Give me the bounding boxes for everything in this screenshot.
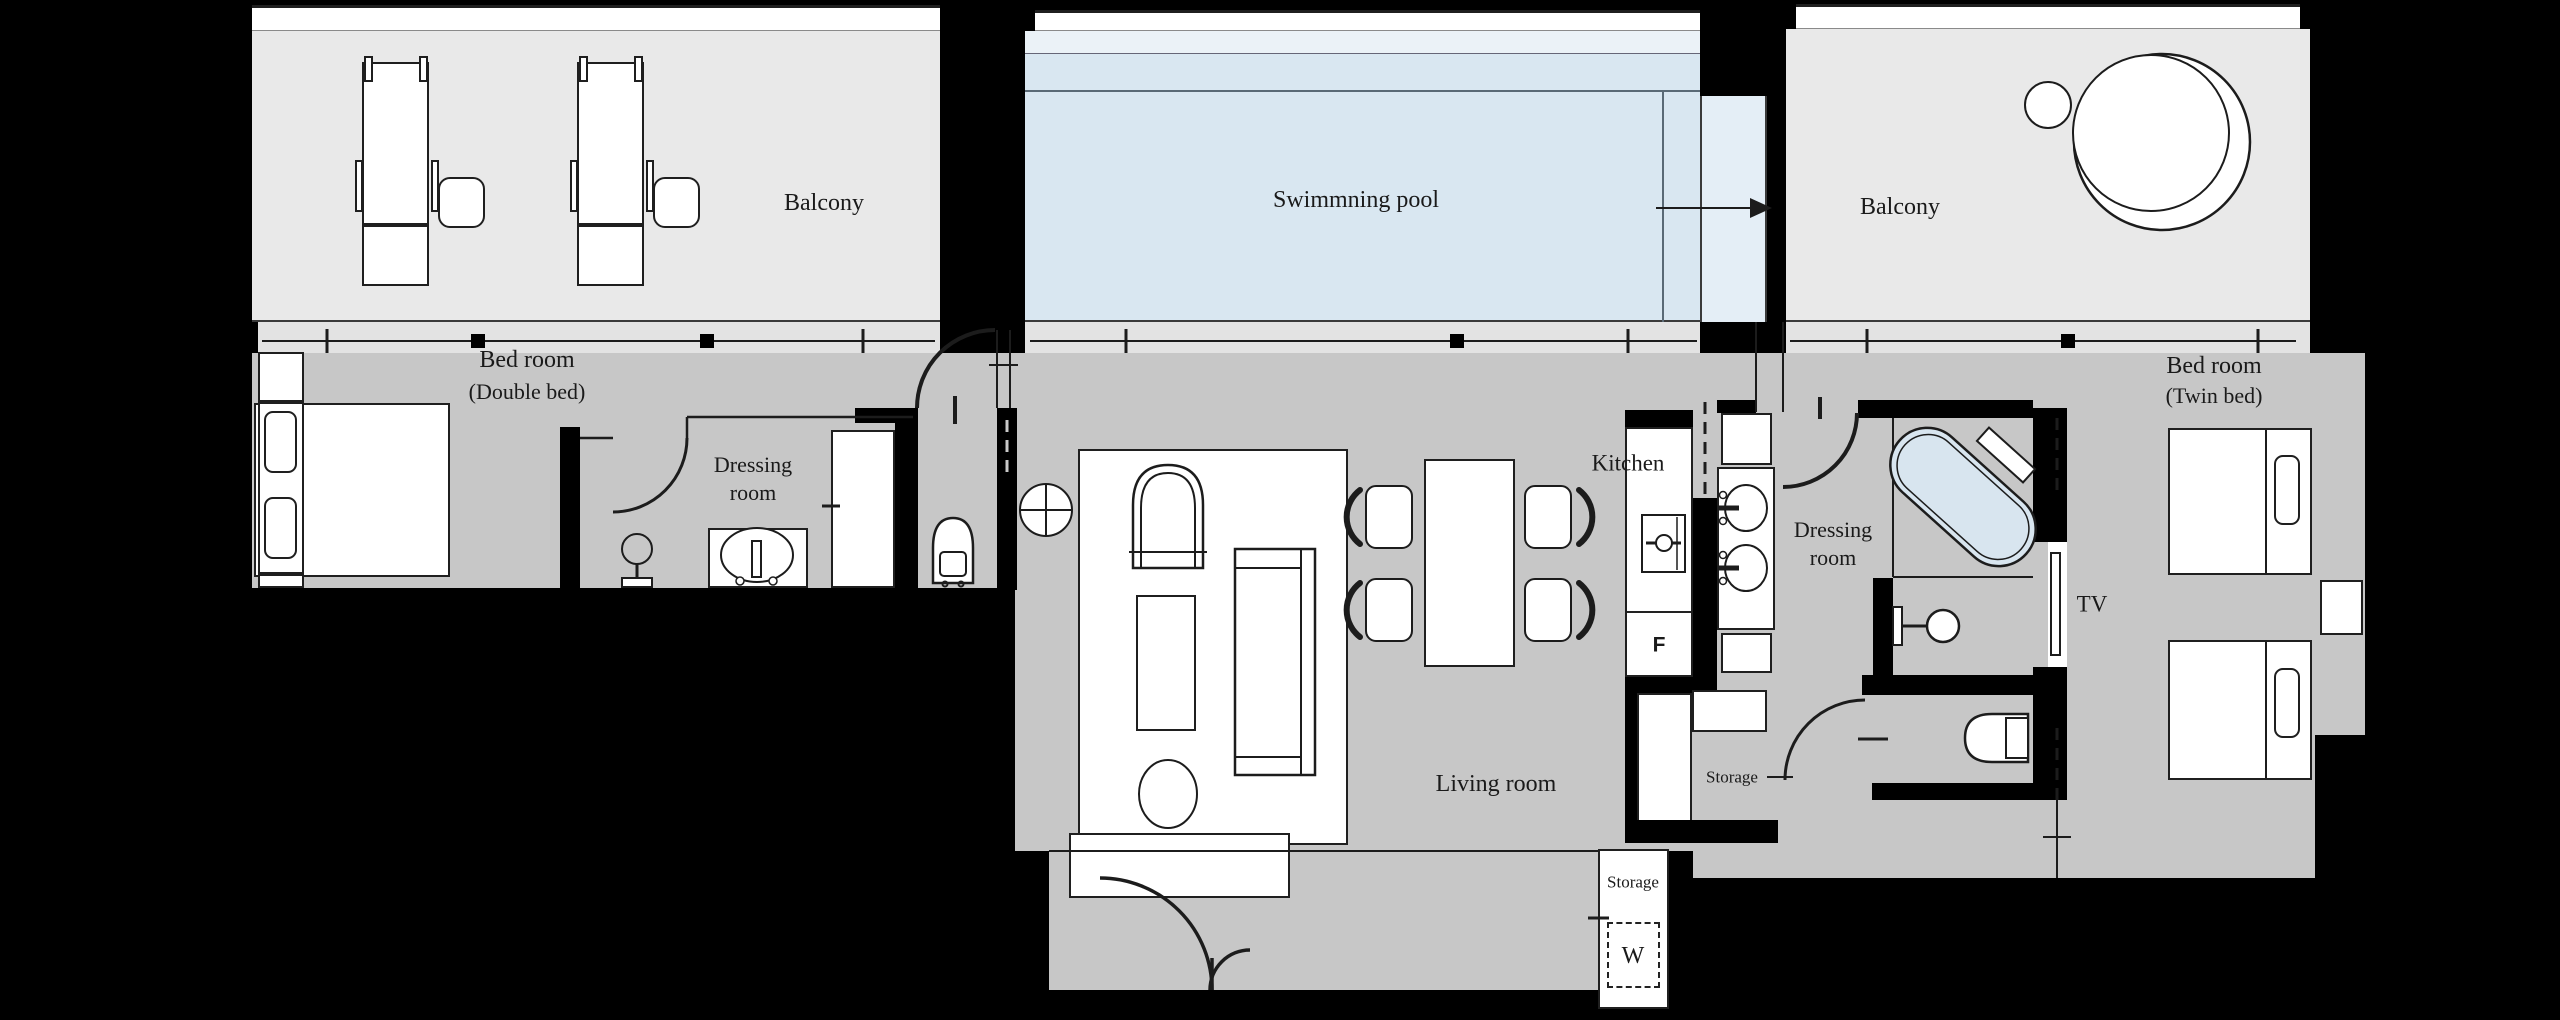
balcony-left-label: Balcony bbox=[784, 191, 864, 215]
lounger-tab bbox=[570, 160, 578, 212]
railing-band-right bbox=[1796, 4, 2300, 29]
dressing-right-label-1: Dressing bbox=[1794, 519, 1872, 541]
tv-console bbox=[1069, 833, 1290, 898]
floor-plan: Balcony Swimmning pool Balcony Bed room … bbox=[0, 0, 2560, 1020]
balcony-right-floor bbox=[1786, 29, 2310, 322]
bedroom-left-sublabel: (Double bed) bbox=[469, 381, 586, 403]
window-band-left bbox=[252, 322, 940, 353]
living-room-label: Living room bbox=[1436, 772, 1557, 796]
swimming-pool-label: Swimmning pool bbox=[1273, 188, 1439, 212]
wall-toilet2-bottom bbox=[1872, 783, 2057, 800]
lounger-tab bbox=[579, 56, 588, 82]
pillow bbox=[2274, 455, 2300, 525]
window-band-right bbox=[1786, 322, 2310, 353]
bedroom-left-label: Bed room bbox=[479, 348, 574, 372]
pier-top-left bbox=[940, 0, 1025, 98]
storage-center-label: Storage bbox=[1706, 769, 1758, 786]
closet-corridor bbox=[831, 430, 895, 588]
tv-niche bbox=[2048, 542, 2067, 667]
nightstand-bottom bbox=[258, 574, 304, 588]
pier-bottom-right-b bbox=[1781, 322, 1786, 353]
sun-lounger-body bbox=[577, 62, 644, 225]
bedroom-right-label: Bed room bbox=[2166, 354, 2261, 378]
wall-bath-top bbox=[1858, 400, 2033, 418]
dining-table bbox=[1424, 459, 1515, 667]
pool-edge-line bbox=[1025, 90, 1700, 92]
tv-wall-lower bbox=[2033, 667, 2067, 800]
wall-bedl-divider bbox=[560, 427, 580, 590]
bedroom-right-notch bbox=[2315, 735, 2378, 878]
left-block-bottom-wall bbox=[250, 588, 1015, 620]
lounger-tab bbox=[419, 56, 428, 82]
kitchen-label: Kitchen bbox=[1592, 452, 1665, 475]
side-table bbox=[438, 177, 485, 228]
storage-bottom-label: Storage bbox=[1607, 874, 1659, 891]
pillow bbox=[2274, 668, 2300, 738]
bottom-wall-right bbox=[1778, 878, 2378, 902]
wash-counter-top-box bbox=[1721, 413, 1772, 465]
wash-counter bbox=[1717, 467, 1775, 630]
nightstand-top bbox=[258, 352, 304, 402]
dressing-right-label-2: room bbox=[1810, 547, 1856, 569]
wall-kitchen-top bbox=[1625, 410, 1693, 427]
vanity-left bbox=[708, 528, 808, 588]
lounger-tab bbox=[355, 160, 363, 212]
wall-corridor bbox=[895, 423, 918, 590]
washer-marker: W bbox=[1622, 944, 1645, 968]
fridge-marker: F bbox=[1653, 635, 1666, 656]
sun-lounger-foot bbox=[577, 225, 644, 286]
railing-band-left bbox=[252, 5, 940, 31]
wall-kitchen-divider bbox=[1693, 498, 1717, 690]
wall-entry-stub bbox=[855, 408, 918, 423]
tv-wall-upper bbox=[2033, 408, 2067, 542]
pier-bottom-left-a bbox=[940, 322, 997, 353]
pool-deck-strip bbox=[1025, 31, 1700, 54]
living-rug bbox=[1078, 449, 1348, 845]
pier-top-right bbox=[1700, 0, 1786, 96]
storage-tall-cabinet bbox=[1637, 693, 1692, 823]
wall-kitchen-topbar bbox=[1717, 400, 1756, 413]
pool-channel bbox=[1700, 96, 1767, 322]
sun-lounger-foot bbox=[362, 225, 429, 286]
balcony-right-label: Balcony bbox=[1860, 195, 1940, 219]
lounger-tab bbox=[364, 56, 373, 82]
tv-label: TV bbox=[2077, 593, 2108, 616]
pillow bbox=[264, 411, 297, 473]
dressing-left-label-1: Dressing bbox=[714, 454, 792, 476]
entry-hall-bottom-wall bbox=[1049, 990, 1598, 1012]
pier-bottom-right-a bbox=[1702, 322, 1756, 353]
fridge-divider-line bbox=[1627, 611, 1691, 613]
pillow bbox=[264, 497, 297, 559]
wall-entry-column bbox=[997, 408, 1017, 590]
railing-band-center bbox=[1035, 10, 1700, 31]
balcony-right-outer-wall bbox=[2310, 0, 2324, 322]
dressing-left-label-2: room bbox=[730, 482, 776, 504]
wall-storage-bottom bbox=[1625, 820, 1778, 843]
storage-top-cabinet bbox=[1692, 690, 1767, 732]
window-band-center bbox=[1025, 322, 1700, 353]
sun-lounger-body bbox=[362, 62, 429, 225]
lounger-tab bbox=[634, 56, 643, 82]
bedroom-right-sublabel: (Twin bed) bbox=[2166, 385, 2263, 407]
coffee-table bbox=[1136, 595, 1196, 731]
corner-wall-topright bbox=[2310, 318, 2378, 353]
pool-step-line bbox=[1662, 92, 1664, 322]
wash-counter-bottom-box bbox=[1721, 633, 1772, 673]
side-table bbox=[653, 177, 700, 228]
nightstand-right bbox=[2320, 580, 2363, 635]
wall-toilet2-top bbox=[1862, 675, 2033, 695]
pier-bottom-left-b bbox=[1010, 322, 1025, 353]
